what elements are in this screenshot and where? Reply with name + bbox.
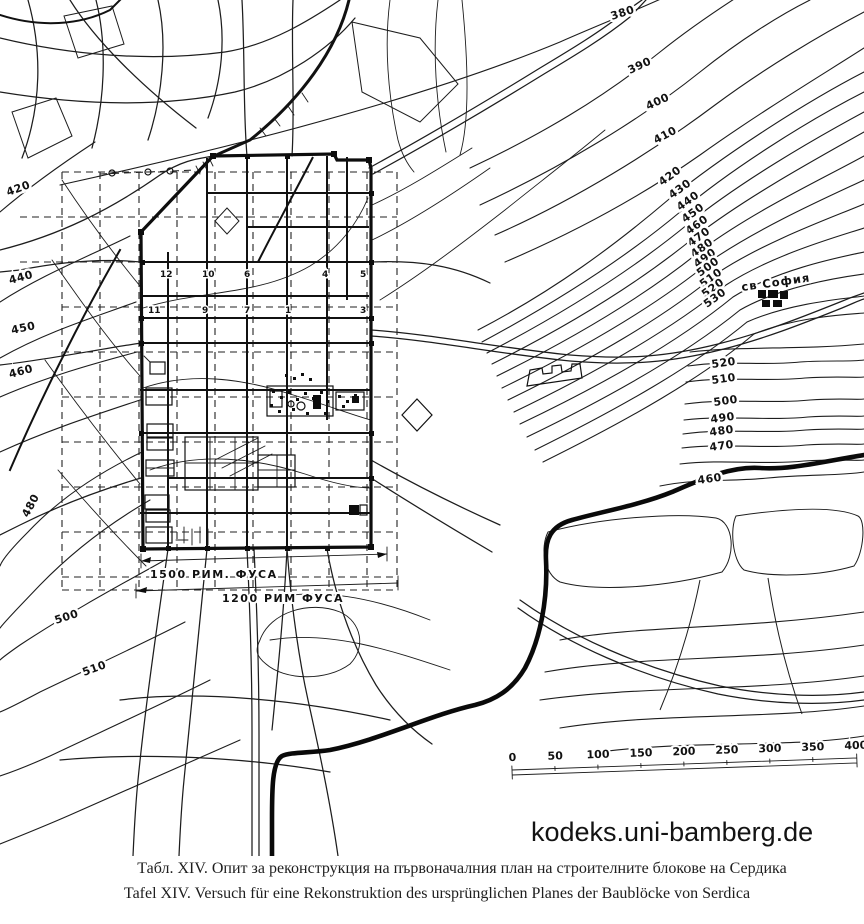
- contour-label: 380: [609, 3, 636, 23]
- contour-label: 410: [651, 124, 679, 147]
- watermark: kodeks.uni-bamberg.de: [531, 817, 813, 847]
- block-numbers: 12 10 6 4 5 11 9 7 1 3: [148, 270, 366, 316]
- block-number: 3: [360, 306, 366, 316]
- caption-german: Tafel XIV. Versuch für eine Rekonstrukti…: [0, 881, 864, 906]
- city-plan: [20, 151, 397, 590]
- scale-tick-label: 400: [844, 739, 864, 753]
- contour-label: 470: [709, 438, 735, 454]
- caption-bulgarian: Табл. XIV. Опит за реконструкция на първ…: [0, 856, 864, 881]
- block-number: 11: [148, 306, 161, 316]
- block-number: 9: [202, 306, 208, 316]
- dimension-label-1500: 1500 РИМ. ФУСА: [150, 568, 278, 581]
- contour-label: 420: [5, 178, 32, 199]
- contour-label: 480: [19, 492, 42, 520]
- serdica-reconstruction-map: 380 390 400 410 420 430 440 450 460 470 …: [0, 0, 864, 856]
- scale-tick-label: 300: [758, 742, 782, 756]
- diamond-building: [402, 399, 432, 431]
- scale-tick-label: 200: [672, 745, 696, 759]
- contour-label: 460: [7, 362, 34, 381]
- scale-tick-label: 250: [715, 743, 739, 757]
- contour-label: 400: [644, 91, 672, 113]
- contour-lines-northeast: [60, 0, 864, 462]
- contour-lines-right: [660, 344, 864, 486]
- fields-southeast: [518, 509, 864, 714]
- caption: Табл. XIV. Опит за реконструкция на първ…: [0, 856, 864, 906]
- scale-tick-label: 100: [586, 748, 610, 762]
- railway-line: [214, 0, 349, 156]
- block-number: 5: [360, 270, 366, 280]
- ideal-grid-dashed: [20, 172, 397, 590]
- scale-tick-label: 350: [801, 740, 825, 754]
- dimension-annotations: 1500 РИМ. ФУСА 1200 РИМ ФУСА: [136, 547, 398, 605]
- contour-label: 500: [713, 393, 739, 409]
- contour-label: 480: [709, 423, 735, 439]
- city-central-compound: [185, 208, 295, 490]
- block-number: 10: [202, 270, 215, 280]
- contour-label: 460: [697, 471, 723, 487]
- block-number: 7: [244, 306, 250, 316]
- contour-label: 510: [711, 371, 737, 387]
- scale-bar: 0 50 100 150 200 250 300 350 400 М: [508, 737, 864, 779]
- contour-label: 450: [10, 319, 37, 337]
- block-number: 6: [244, 270, 250, 280]
- roads: [0, 0, 864, 856]
- block-number: 4: [322, 270, 328, 280]
- dimension-label-1200: 1200 РИМ ФУСА: [222, 592, 344, 605]
- contour-label: 510: [81, 658, 108, 679]
- contour-label: 500: [53, 607, 80, 627]
- contour-label: 520: [711, 355, 737, 371]
- contour-lines-west: [0, 142, 240, 844]
- block-number: 12: [160, 270, 173, 280]
- block-number: 1: [285, 306, 291, 316]
- crenellated-building: [527, 364, 582, 386]
- scanned-map-page: 380 390 400 410 420 430 440 450 460 470 …: [0, 0, 864, 924]
- forum-complex: [267, 373, 364, 416]
- scale-tick-label: 150: [629, 746, 653, 760]
- st-sofia-church-icon: [758, 290, 788, 307]
- contour-label: 390: [626, 55, 654, 77]
- scale-tick-label: 0: [508, 751, 516, 764]
- scale-tick-label: 50: [547, 749, 563, 763]
